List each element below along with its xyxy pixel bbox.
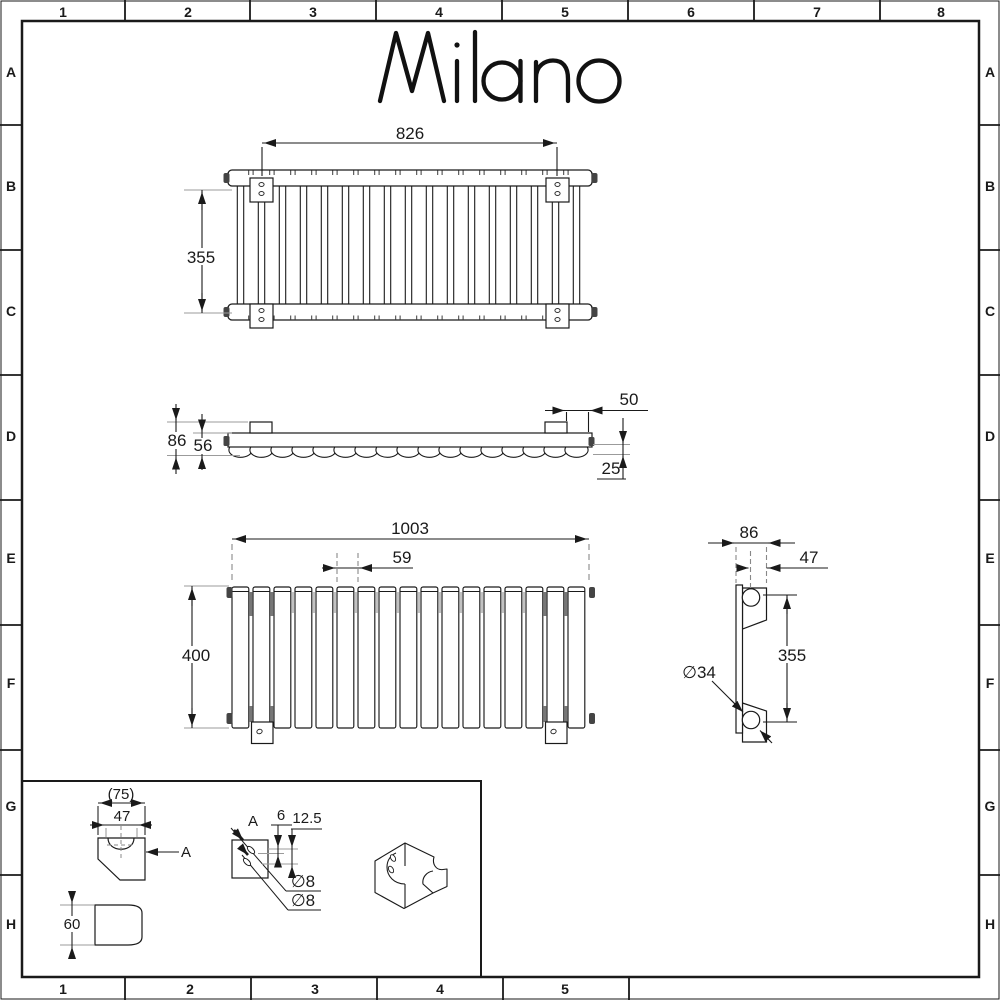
grid-label: H: [985, 916, 995, 932]
dim-text-bracket-notch: 47: [114, 808, 131, 825]
grid-label: 1: [59, 4, 67, 20]
grid-label: G: [6, 798, 17, 814]
grid-label: 5: [561, 4, 569, 20]
grid-label: 1: [59, 981, 67, 997]
side-bracket-tab-right: [545, 422, 567, 433]
grid-label: F: [7, 675, 16, 691]
dim-text-end-projection: 47: [800, 548, 819, 567]
grid-label: C: [6, 303, 16, 319]
sheet-border: 1 2 3 4 5 6 7 8 1 2 3 4 5 A B C D E F G …: [0, 0, 1000, 1000]
end-tube-top: [742, 589, 759, 606]
grid-label: B: [6, 178, 16, 194]
grid-label: 7: [813, 4, 821, 20]
logo-letter-o: [579, 61, 620, 102]
dim-text-bracket-height: 60: [64, 916, 81, 933]
dim-text-hole-offset: 12.5: [292, 810, 321, 827]
grid-label: 2: [184, 4, 192, 20]
grid-label: H: [6, 916, 16, 932]
dim-text-front-height: 400: [182, 646, 210, 665]
section-view-label: A: [248, 813, 258, 830]
grid-label: D: [985, 428, 995, 444]
grid-label: E: [985, 550, 994, 566]
grid-labels-right: A B C D E F G H: [985, 64, 996, 932]
milano-logo: [380, 32, 620, 102]
grid-label: 4: [436, 981, 444, 997]
end-tube-bottom: [742, 711, 759, 728]
grid-label: G: [985, 798, 996, 814]
dim-end-depth: [708, 543, 795, 583]
grid-label: D: [6, 428, 16, 444]
grid-label: 3: [309, 4, 317, 20]
grid-label: 5: [561, 981, 569, 997]
grid-label: E: [6, 550, 15, 566]
grid-label: F: [986, 675, 995, 691]
dim-text-side-panel: 56: [194, 436, 213, 455]
end-view: 86 47 355 ∅34: [682, 523, 828, 743]
grid-label: 3: [311, 981, 319, 997]
front-view: 1003 59 400: [176, 519, 595, 744]
grid-label: A: [985, 64, 995, 80]
dim-text-side-bracket: 50: [620, 390, 639, 409]
grid-label: A: [6, 64, 16, 80]
dim-text-side-overall: 86: [168, 431, 187, 450]
plan-bottom-rail: [228, 304, 592, 320]
dim-text-hole-spacing: 6: [277, 807, 285, 824]
dim-text-front-pitch: 59: [393, 548, 412, 567]
bracket-front-view: (75) 47 A: [90, 786, 191, 880]
dim-text-end-centres: 355: [778, 646, 806, 665]
grid-label: 4: [435, 4, 443, 20]
inset-box: [22, 781, 481, 977]
side-view: 86 56 50 25: [162, 390, 648, 479]
dim-text-side-wall: 25: [602, 459, 621, 478]
plan-view: 826 355: [182, 124, 598, 328]
side-bracket-tab-left: [250, 422, 272, 433]
plan-top-rail: [228, 170, 592, 186]
dim-text-bracket-width: (75): [108, 786, 135, 803]
bracket-detail-inset: (75) 47 A: [22, 781, 481, 977]
grid-labels-bottom: 1 2 3 4 5: [59, 981, 569, 997]
dim-text-hole-dia-2: ∅8: [291, 891, 315, 910]
bracket-isometric-view: [375, 843, 447, 909]
section-arrow-label: A: [181, 844, 191, 861]
grid-label: 2: [186, 981, 194, 997]
logo-letter-M: [380, 33, 444, 101]
dim-text-end-depth: 86: [740, 523, 759, 542]
logo-letter-a: [484, 63, 521, 100]
dim-text-front-width: 1003: [391, 519, 429, 538]
grid-label: C: [985, 303, 995, 319]
bracket-bottom-view: 60: [59, 892, 142, 958]
dim-text-plan-depth: 355: [187, 248, 215, 267]
dim-text-end-diameter: ∅34: [682, 663, 716, 682]
drawing-canvas: 1 2 3 4 5 6 7 8 1 2 3 4 5 A B C D E F G …: [0, 0, 1000, 1000]
grid-labels-left: A B C D E F G H: [6, 64, 17, 932]
dim-text-hole-dia-1: ∅8: [291, 872, 315, 891]
logo-letter-n: [536, 61, 568, 102]
grid-label: 6: [687, 4, 695, 20]
side-top-plate: [228, 433, 592, 447]
bracket-section-view: A: [231, 807, 322, 910]
grid-label: 8: [937, 4, 945, 20]
technical-drawing-sheet: 1 2 3 4 5 6 7 8 1 2 3 4 5 A B C D E F G …: [0, 0, 1000, 1000]
dim-text-plan-width: 826: [396, 124, 424, 143]
grid-label: B: [985, 178, 995, 194]
